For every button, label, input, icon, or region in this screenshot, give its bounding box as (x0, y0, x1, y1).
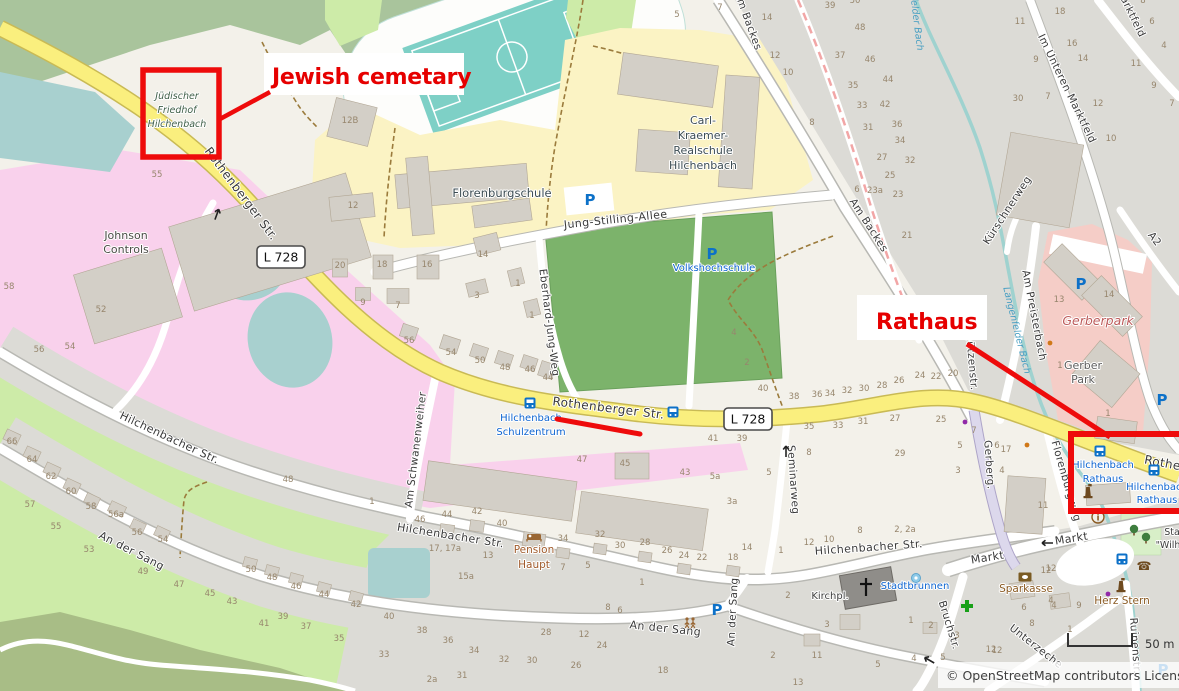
house-number: 8 (857, 526, 862, 536)
svg-text:L 728: L 728 (731, 412, 766, 427)
svg-text:P: P (1076, 275, 1087, 293)
dot-icon (1106, 592, 1111, 597)
house-number: 5 (875, 660, 880, 670)
house-number: 3 (954, 631, 959, 641)
house-number: 34 (825, 389, 836, 399)
house-number: 42 (351, 600, 362, 610)
house-number: 35 (804, 422, 815, 432)
house-number: 23 (893, 190, 904, 200)
bus-icon (525, 398, 536, 409)
transit-stop-label: Hilchenbach (500, 413, 562, 424)
house-number: 14 (1104, 290, 1115, 300)
house-number: 14 (762, 13, 773, 23)
svg-text:P: P (1157, 391, 1168, 409)
svg-text:P: P (585, 191, 596, 209)
house-number: 26 (894, 376, 905, 386)
house-number: 66 (7, 437, 18, 447)
house-number: 2 (785, 591, 790, 601)
rathaus-label: Rathaus (876, 310, 978, 335)
house-number: 41 (259, 619, 270, 629)
fountain-icon (912, 574, 921, 583)
transit-stop-label: Schulzentrum (496, 427, 565, 438)
poi-label: Hilchenbach (148, 119, 207, 130)
house-number: 8 (806, 448, 811, 458)
house-number: 4 (999, 466, 1004, 476)
house-number: 26 (571, 661, 582, 671)
house-number: 1 (1057, 361, 1062, 371)
route-badge: L 728 (724, 408, 772, 430)
house-number: 12 (770, 51, 781, 61)
poi-label: Haupt (518, 559, 550, 571)
house-number: 46 (415, 515, 426, 525)
house-number: 53 (84, 545, 95, 555)
house-number: 38 (417, 626, 428, 636)
house-number: 18 (658, 666, 669, 676)
house-number: 6 (854, 185, 859, 195)
house-number: 32 (499, 655, 510, 665)
house-number: 12 (1093, 99, 1104, 109)
house-number: 6 (617, 606, 622, 616)
house-number: 31 (863, 123, 874, 133)
house-number: 33 (857, 101, 868, 111)
house-number: 1 (1105, 409, 1110, 419)
poi-label: Sparkasse (999, 583, 1053, 595)
house-number: 5 (585, 561, 590, 571)
poi-label: Kirchpl. (811, 591, 848, 602)
house-number: 36 (892, 120, 903, 130)
house-number: 21 (902, 231, 913, 241)
house-number: 13 (1054, 295, 1065, 305)
house-number: 34 (558, 534, 569, 544)
house-number: 56 (132, 528, 143, 538)
house-number: 13 (483, 551, 494, 561)
house-number: 4 (1161, 41, 1166, 51)
parking-icon: P (707, 245, 718, 263)
svg-text:i: i (1096, 514, 1099, 524)
svg-text:☎: ☎ (1137, 559, 1152, 573)
pond (368, 548, 430, 598)
poi-label: Gerberpark (1062, 313, 1134, 328)
bus-icon (1149, 465, 1160, 476)
bank-icon (1019, 573, 1032, 582)
house-number: 5 (940, 653, 945, 663)
house-number: 7 (1045, 92, 1050, 102)
house-number: 5 (674, 10, 679, 20)
house-number: 22 (931, 372, 942, 382)
house-number: 33 (833, 421, 844, 431)
house-number: 50 (246, 565, 257, 575)
house-number: 4 (1048, 596, 1053, 606)
house-number: 23a (867, 186, 883, 196)
house-number: 2a (427, 675, 438, 685)
house-number: 3 (474, 291, 479, 301)
poi-label: Jüdischer (153, 91, 200, 102)
house-number: 46 (865, 55, 876, 65)
house-number: 20 (335, 261, 346, 271)
house-number: 32 (905, 156, 916, 166)
house-number: 9 (1033, 55, 1038, 65)
dot-icon (963, 420, 968, 425)
house-number: 48 (500, 363, 511, 373)
house-number: 5 (766, 468, 771, 478)
house-number: 60 (66, 487, 77, 497)
house-number: 52 (96, 305, 107, 315)
house-number: 12 (986, 645, 997, 655)
svg-text:P: P (712, 601, 723, 619)
house-number: 28 (877, 381, 888, 391)
house-number: 1 (529, 311, 534, 321)
route-badge: L 728 (257, 246, 305, 268)
house-number: 56a (108, 510, 124, 520)
house-number: 36 (812, 390, 823, 400)
house-number: 14 (1078, 54, 1089, 64)
house-number: 10 (783, 68, 794, 78)
house-number: 8 (605, 603, 610, 613)
house-number: 41 (708, 434, 719, 444)
house-number: 38 (789, 392, 800, 402)
house-number: 2, 2a (894, 525, 915, 535)
house-number: 48 (267, 573, 278, 583)
house-number: 48 (855, 23, 866, 33)
house-number: 27 (890, 414, 901, 424)
house-number: 26 (662, 546, 673, 556)
map-canvas[interactable]: Rothenberger Str.Rothenberger Str.Rothen… (0, 0, 1179, 691)
dot-icon (1048, 341, 1053, 346)
house-number: 42 (472, 507, 483, 517)
house-number: 55 (152, 170, 163, 180)
house-number: 37 (835, 51, 846, 61)
house-number: 24 (679, 551, 690, 561)
house-number: 44 (319, 590, 330, 600)
house-number: 50 (475, 356, 486, 366)
attribution-text: © OpenStreetMap contributors License (946, 668, 1179, 683)
house-number: 33 (379, 650, 390, 660)
parking-icon: P (712, 601, 723, 619)
house-number: 5 (957, 441, 962, 451)
poi-label: Hilchenbach (669, 159, 737, 172)
house-number: 2 (770, 651, 775, 661)
house-number: 39 (737, 434, 748, 444)
house-number: 2 (744, 358, 749, 368)
transit-stop-label: Rathaus (1137, 495, 1178, 506)
house-number: 8 (1029, 619, 1034, 629)
transit-stop-label: Hilchenbach (1126, 482, 1179, 493)
house-number: 11 (812, 651, 823, 661)
house-number: 29 (895, 449, 906, 459)
house-number: 28 (541, 628, 552, 638)
house-number: 16 (1067, 39, 1078, 49)
house-number: 15a (458, 572, 474, 582)
phone-icon: ☎ (1137, 559, 1152, 573)
house-number: 10 (824, 535, 835, 545)
house-number: 10 (1106, 134, 1117, 144)
house-number: 8 (1140, 0, 1145, 6)
house-number: 30 (527, 656, 538, 666)
house-number: 32 (842, 386, 853, 396)
poi-label: Herz Stern (1094, 595, 1150, 607)
house-number: 44 (883, 75, 894, 85)
house-number: 40 (384, 612, 395, 622)
transit-stop-label: Hilchenbach (1072, 460, 1134, 471)
house-number: 54 (158, 535, 169, 545)
house-number: 24 (915, 371, 926, 381)
house-number: 64 (27, 455, 38, 465)
house-number: 6 (994, 441, 999, 451)
poi-label: Friedhof (157, 105, 198, 116)
house-number: 40 (497, 519, 508, 529)
house-number: 30 (859, 384, 870, 394)
house-number: 3 (955, 466, 960, 476)
poi-label: Realschule (673, 144, 732, 157)
house-number: 4 (731, 328, 736, 338)
house-number: 25 (885, 171, 896, 181)
transit-stop-label: Rathaus (1083, 474, 1124, 485)
house-number: 32 (595, 530, 606, 540)
poi-label: Pension (514, 544, 555, 556)
house-number: 7 (971, 426, 976, 436)
parking-icon: P (1076, 275, 1087, 293)
house-number: 18 (377, 260, 388, 270)
house-number: 9 (1076, 601, 1081, 611)
house-number: 22 (697, 553, 708, 563)
house-number: 30 (615, 541, 626, 551)
attribution: © OpenStreetMap contributors License (938, 662, 1179, 688)
house-number: 48 (283, 475, 294, 485)
house-number: 35 (334, 634, 345, 644)
house-number: 1 (778, 546, 783, 556)
house-number: 58 (86, 502, 97, 512)
house-number: 7 (560, 563, 565, 573)
house-number: 45 (205, 589, 216, 599)
house-number: 3a (727, 497, 738, 507)
house-number: 12B (342, 116, 359, 126)
house-number: 9 (360, 298, 365, 308)
house-number: 50 (850, 0, 861, 6)
svg-text:L 728: L 728 (264, 250, 299, 265)
house-number: 9 (1151, 81, 1156, 91)
house-number: 31 (858, 417, 869, 427)
house-number: 46 (291, 582, 302, 592)
house-number: 1 (515, 279, 520, 289)
house-number: 39 (825, 1, 836, 11)
house-number: 25 (936, 415, 947, 425)
house-number: 13 (793, 678, 804, 688)
house-number: 12 (579, 630, 590, 640)
dot-icon (1025, 443, 1030, 448)
house-number: 24 (597, 641, 608, 651)
poi-label: Gerber (1064, 359, 1103, 372)
house-number: 16 (422, 260, 433, 270)
house-number: 34 (895, 136, 906, 146)
house-number: 43 (680, 468, 691, 478)
poi-label: Florenburgschule (452, 186, 551, 200)
house-number: 55 (51, 522, 62, 532)
house-number: 3 (824, 620, 829, 630)
svg-text:P: P (707, 245, 718, 263)
poi-label: "Wilh (1156, 540, 1179, 551)
house-number: 30 (1013, 94, 1024, 104)
parking-icon: P (1157, 391, 1168, 409)
bus-icon (668, 407, 679, 418)
house-number: 6 (1149, 17, 1154, 27)
bus-icon (1095, 446, 1106, 457)
house-number: 14 (742, 543, 753, 553)
house-number: 47 (174, 580, 185, 590)
house-number: 7 (395, 301, 400, 311)
house-number: 42 (880, 100, 891, 110)
house-number: 58 (4, 282, 15, 292)
house-number: 57 (25, 500, 36, 510)
house-number: 54 (446, 348, 457, 358)
house-number: 7 (717, 3, 722, 13)
house-number: 36 (443, 636, 454, 646)
house-number: 1 (639, 578, 644, 588)
house-number: 35 (848, 81, 859, 91)
house-number: 12 (1046, 564, 1057, 574)
house-number: 62 (46, 472, 57, 482)
house-number: 12 (804, 538, 815, 548)
house-number: 1 (369, 497, 374, 507)
house-number: 11 (1131, 59, 1142, 69)
house-number: 8 (809, 118, 814, 128)
parking-icon: P (585, 191, 596, 209)
house-number: 28 (640, 538, 651, 548)
house-number: 40 (758, 384, 769, 394)
house-number: 12 (348, 201, 359, 211)
house-number: 44 (442, 510, 453, 520)
house-number: 47 (577, 455, 588, 465)
house-number: 27 (877, 153, 888, 163)
poi-label: Kraemer- (678, 129, 729, 142)
house-number: 11 (1038, 501, 1049, 511)
bus-icon (1117, 554, 1128, 565)
house-number: 14 (478, 250, 489, 260)
house-number: 18 (1055, 7, 1066, 17)
house-number: 17 (1001, 445, 1012, 455)
house-number: 45 (620, 459, 631, 469)
house-number: 34 (469, 646, 480, 656)
house-number: 7 (1169, 99, 1174, 109)
house-number: 20 (948, 369, 959, 379)
poi-label: Johnson (103, 229, 147, 242)
scale-text: 50 m (1145, 637, 1175, 651)
poi-label: Park (1071, 373, 1095, 386)
house-number: 18 (728, 553, 739, 563)
house-number: 43 (227, 597, 238, 607)
house-number: 46 (525, 365, 536, 375)
house-number: 56 (404, 336, 415, 346)
house-number: 54 (65, 342, 76, 352)
house-number: 11 (1015, 17, 1026, 27)
house-number: 17, 17a (429, 544, 461, 554)
jewish-cemetery-label: Jewish cemetary (270, 65, 471, 90)
house-number: 39 (278, 612, 289, 622)
house-number: 31 (457, 671, 468, 681)
house-number: 2 (928, 621, 933, 631)
poi-label: Controls (103, 243, 149, 256)
house-number: 6 (1021, 603, 1026, 613)
map-viewport[interactable]: Rothenberger Str.Rothenberger Str.Rothen… (0, 0, 1179, 691)
transit-stop-label: Volkshochschule (673, 263, 756, 274)
poi-label: Carl- (690, 114, 716, 127)
house-number: 37 (301, 622, 312, 632)
house-number: 44 (543, 373, 554, 383)
house-number: 49 (138, 567, 149, 577)
house-number: 56 (34, 345, 45, 355)
poi-label: Sta (1164, 527, 1179, 538)
house-number: 5a (710, 472, 721, 482)
house-number: 4 (911, 654, 916, 664)
house-number: 1 (908, 616, 913, 626)
